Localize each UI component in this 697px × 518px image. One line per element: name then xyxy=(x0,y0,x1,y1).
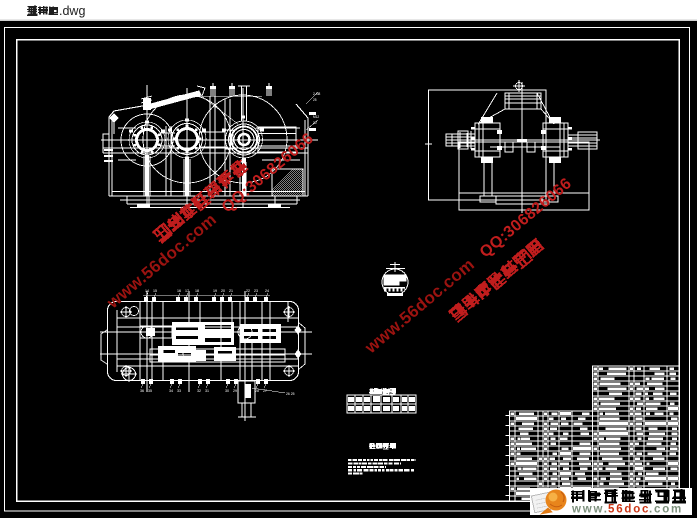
svg-text:35: 35 xyxy=(148,389,152,393)
svg-text:33: 33 xyxy=(177,389,181,393)
svg-text:56doc: 56doc xyxy=(608,504,650,516)
svg-text:15: 15 xyxy=(153,289,157,293)
svg-text:22: 22 xyxy=(246,289,250,293)
svg-text:14: 14 xyxy=(145,289,149,293)
svg-text:34: 34 xyxy=(169,389,173,393)
svg-text:17: 17 xyxy=(185,289,189,293)
svg-text:.com: .com xyxy=(649,504,683,516)
svg-text:24: 24 xyxy=(265,289,269,293)
svg-text:www.: www. xyxy=(571,504,609,516)
svg-text:30: 30 xyxy=(225,389,229,393)
svg-text:19: 19 xyxy=(213,289,217,293)
svg-text:30: 30 xyxy=(313,121,317,125)
svg-text:31: 31 xyxy=(205,389,209,393)
svg-text:M12: M12 xyxy=(313,115,319,119)
svg-text:36: 36 xyxy=(140,389,144,393)
svg-text:25: 25 xyxy=(313,98,317,102)
svg-text:16: 16 xyxy=(177,289,181,293)
svg-text:2-M8: 2-M8 xyxy=(313,92,320,96)
svg-text:21: 21 xyxy=(229,289,233,293)
svg-text:29: 29 xyxy=(233,389,237,393)
svg-text:.dwg: .dwg xyxy=(59,4,85,18)
svg-text:18: 18 xyxy=(195,289,199,293)
svg-text:20: 20 xyxy=(221,289,225,293)
svg-text:QQ:306826066: QQ:306826066 xyxy=(477,175,575,261)
svg-text:26 25: 26 25 xyxy=(286,392,295,396)
svg-text:28: 28 xyxy=(255,389,259,393)
svg-text:23: 23 xyxy=(254,289,258,293)
svg-text:32: 32 xyxy=(197,389,201,393)
